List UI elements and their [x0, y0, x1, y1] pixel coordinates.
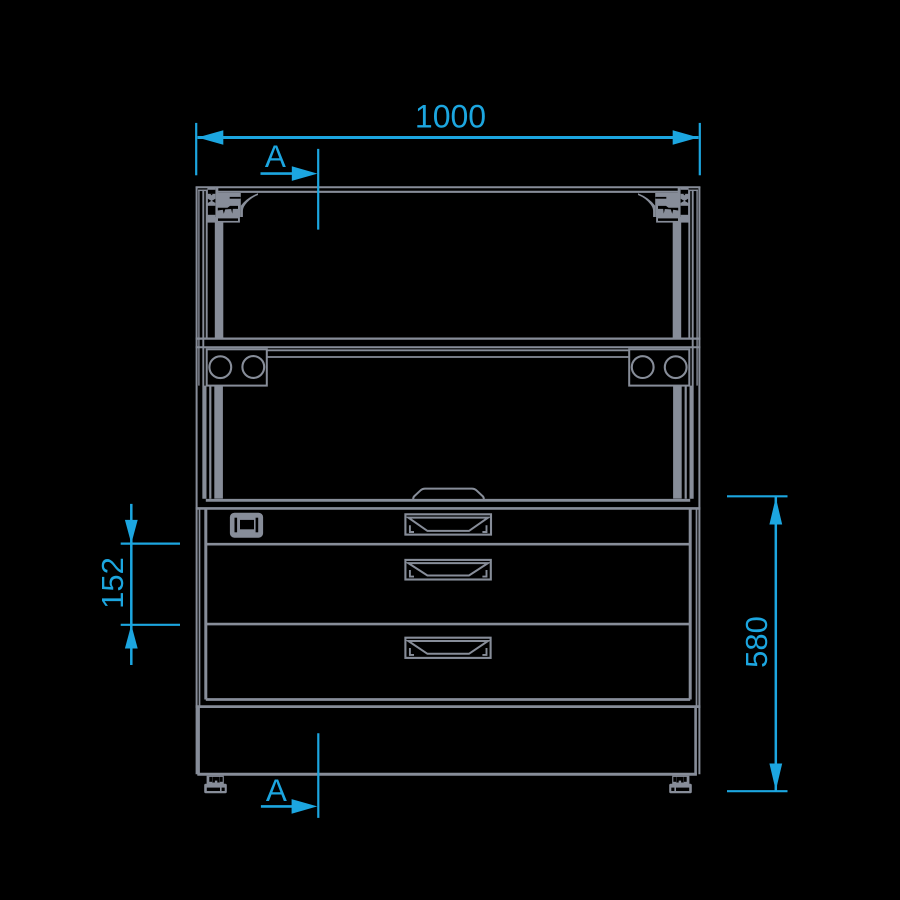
svg-text:A: A	[265, 138, 286, 174]
svg-text:152: 152	[95, 557, 130, 609]
svg-text:580: 580	[739, 616, 774, 668]
svg-text:1000: 1000	[415, 98, 486, 134]
svg-text:A: A	[266, 772, 287, 808]
